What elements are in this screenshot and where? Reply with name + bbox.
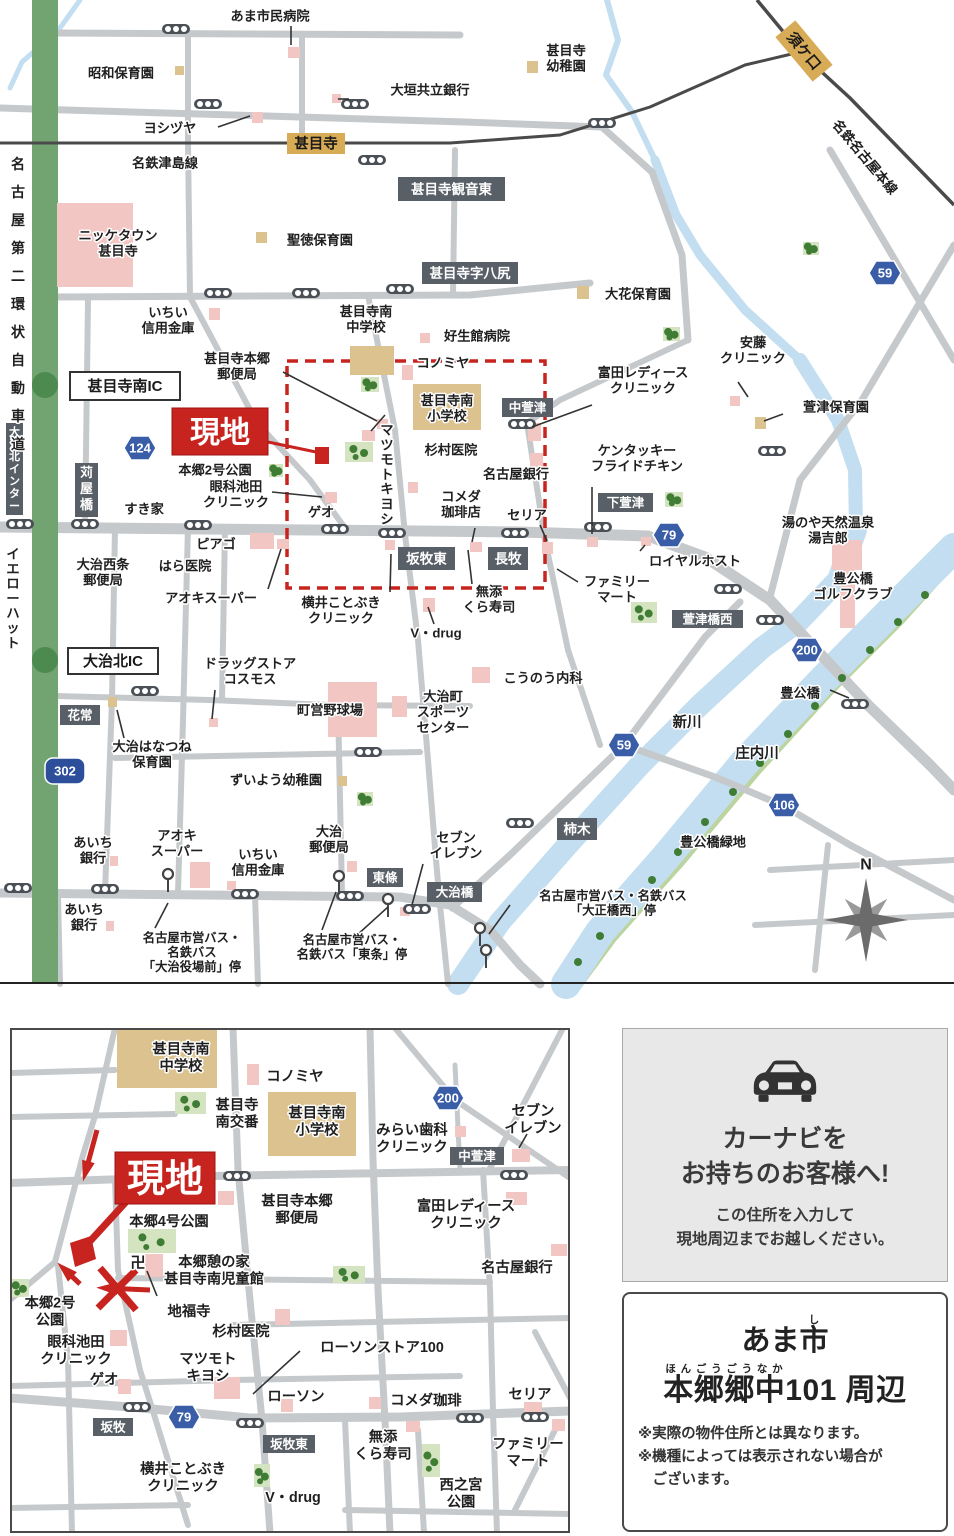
traffic-signal-icon <box>247 1420 253 1426</box>
traffic-signal-icon <box>311 290 317 296</box>
traffic-signal-icon <box>223 290 229 296</box>
tree-icon <box>365 385 371 391</box>
address-city: あま市し <box>624 1314 946 1359</box>
route-badge-number: 106 <box>773 798 795 813</box>
building <box>402 365 413 380</box>
map-label: 横井ことぶきクリニック <box>301 594 380 626</box>
map-label: ドラッグストアコスモス <box>204 655 296 687</box>
map-label: コメダ珈琲店 <box>441 488 481 520</box>
tree-icon <box>669 500 675 506</box>
carnav-title-line1: カーナビを <box>623 1122 947 1157</box>
tree-icon <box>645 610 653 618</box>
address-ruby: 市し <box>800 1325 829 1357</box>
tree-icon <box>596 932 604 940</box>
traffic-signal-icon <box>365 749 371 755</box>
traffic-signal-icon <box>525 820 531 826</box>
map-label: ロイヤルホスト <box>649 554 741 569</box>
traffic-signal-icon <box>769 448 775 454</box>
map-label: 好生館病院 <box>443 328 511 344</box>
road <box>10 1070 115 1073</box>
traffic-signal-icon <box>517 820 523 826</box>
traffic-signal-icon <box>767 617 773 623</box>
map-label: ゲオ <box>308 504 334 520</box>
map-label: 大花保育園 <box>605 286 671 302</box>
building <box>325 492 337 503</box>
traffic-signal-icon <box>406 906 412 912</box>
traffic-signal-icon <box>357 749 363 755</box>
school-building <box>256 232 267 243</box>
traffic-signal-icon <box>295 290 301 296</box>
traffic-signal-icon <box>7 885 13 891</box>
traffic-signal-icon <box>239 1420 245 1426</box>
tree-icon <box>574 958 582 966</box>
road <box>345 1510 570 1514</box>
ic-badge-label: 大治北IC <box>83 652 143 670</box>
carnav-title-line2: お持ちのお客様へ! <box>623 1157 947 1192</box>
map-label: 甚目寺南交番 <box>216 1096 260 1131</box>
tree-icon <box>635 605 643 613</box>
map-label: 地福寺 <box>168 1302 211 1320</box>
tree-icon <box>19 1285 27 1293</box>
building <box>190 862 210 888</box>
traffic-signal-icon <box>603 524 609 530</box>
road <box>10 1505 188 1508</box>
compass-icon <box>824 878 908 962</box>
traffic-signal-icon <box>777 448 783 454</box>
map-label: 甚目寺本郷郵便局 <box>204 350 271 382</box>
place-badge-label: 中萱津 <box>458 1149 496 1164</box>
map-label: 名鉄津島線 <box>132 155 199 171</box>
traffic-signal-icon <box>595 524 601 530</box>
map-label: はら医院 <box>159 558 213 574</box>
interchange-icon <box>32 647 58 673</box>
school-building <box>577 286 589 299</box>
station-badge: 甚目寺 <box>287 133 345 154</box>
tree-icon <box>666 335 672 341</box>
traffic-signal-icon <box>389 286 395 292</box>
traffic-signal-icon <box>405 286 411 292</box>
map-label: 新川 <box>673 713 702 731</box>
traffic-signal-icon <box>504 530 510 536</box>
map-label: ヨシヅヤ <box>144 121 197 136</box>
bus-stop-icon <box>334 871 344 881</box>
traffic-signal-icon <box>503 1172 509 1178</box>
map-label: あま市民病院 <box>230 8 310 24</box>
map-label: 横井ことぶきクリニック <box>140 1460 226 1495</box>
traffic-signal-icon <box>142 688 148 694</box>
building <box>288 47 300 58</box>
park <box>333 1266 365 1283</box>
traffic-signal-icon <box>511 421 517 427</box>
building <box>552 1419 565 1431</box>
place-badge-label: 甚目寺観音東 <box>411 181 492 197</box>
tree-icon <box>894 618 902 626</box>
traffic-signal-icon <box>344 101 350 107</box>
tree-icon <box>638 615 644 621</box>
carnav-sub-line2: 現地周辺までお越しください。 <box>623 1228 947 1252</box>
traffic-signal-icon <box>173 26 179 32</box>
map-label: セリア <box>507 508 547 523</box>
bus-stop-icon <box>475 923 485 933</box>
building <box>392 696 407 717</box>
tree-icon <box>14 1290 20 1296</box>
tree-icon <box>362 378 370 386</box>
traffic-signal-icon <box>532 1414 538 1420</box>
traffic-signal-icon <box>459 1415 465 1421</box>
map-label: 大垣共立銀行 <box>390 82 469 98</box>
building <box>275 1309 290 1325</box>
traffic-signal-icon <box>511 1172 517 1178</box>
traffic-signal-icon <box>255 1420 261 1426</box>
access-map-flyer: 現地甚目寺須ケ口甚目寺南IC大治北IC甚目寺観音東甚目寺字八尻中萱津下萱津長牧坂… <box>0 0 954 1536</box>
traffic-signal-icon <box>512 530 518 536</box>
traffic-signal-icon <box>203 522 209 528</box>
traffic-signal-icon <box>475 1415 481 1421</box>
building <box>110 856 118 866</box>
traffic-signal-icon <box>242 891 248 897</box>
building <box>420 333 430 343</box>
map-label: こうのう内科 <box>503 670 583 686</box>
route-badge-number: 59 <box>878 266 892 281</box>
tree-icon <box>866 646 874 654</box>
tree-icon <box>701 818 709 826</box>
traffic-signal-icon <box>599 120 605 126</box>
traffic-signal-icon <box>23 885 29 891</box>
traffic-signal-icon <box>775 617 781 623</box>
map-label: 名古屋銀行 <box>481 1258 552 1276</box>
leader-line <box>738 382 748 397</box>
traffic-signal-icon <box>467 1415 473 1421</box>
address-main: 本郷ほんごう郷ごう中なか101 周辺 <box>624 1363 946 1409</box>
map-label: イエローハット <box>6 547 19 651</box>
tree-icon <box>349 445 357 453</box>
site-leader <box>268 442 316 452</box>
building <box>730 396 740 406</box>
map-label: 甚目寺南中学校 <box>152 1040 209 1075</box>
traffic-signal-icon <box>197 101 203 107</box>
building <box>362 430 375 441</box>
traffic-signal-icon <box>17 521 23 527</box>
tree-icon <box>192 1100 200 1108</box>
map-label: コノミヤ <box>266 1069 323 1085</box>
traffic-signal-icon <box>205 101 211 107</box>
traffic-signal-icon <box>250 891 256 897</box>
map-label: 杉村医院 <box>425 442 479 458</box>
traffic-signal-icon <box>195 522 201 528</box>
park <box>175 1092 206 1114</box>
building <box>542 542 553 554</box>
tree-icon <box>12 1281 20 1289</box>
traffic-signal-icon <box>361 157 367 163</box>
map-label: 名古屋市営バス・名鉄バス「東条」停 <box>297 932 408 962</box>
map-label: ファミリーマート <box>584 574 650 605</box>
leader-line <box>356 907 388 936</box>
traffic-signal-icon <box>234 1173 240 1179</box>
traffic-signal-icon <box>360 101 366 107</box>
road <box>255 895 258 984</box>
tree-icon <box>729 788 737 796</box>
tree-icon <box>666 493 674 501</box>
building <box>227 881 236 890</box>
map-label: V・drug <box>410 626 461 641</box>
site-label: 現地 <box>190 416 250 449</box>
traffic-signal-icon <box>761 448 767 454</box>
map-label: 名鉄名古屋本線 <box>829 116 901 198</box>
ic-badge-label: 甚目寺南IC <box>87 377 162 395</box>
traffic-signal-icon <box>332 526 338 532</box>
tree-icon <box>339 1268 347 1276</box>
address-notes: ※実際の物件住所とは異なります。※機種によっては表示されない場合が ございます。 <box>624 1423 946 1493</box>
traffic-signal-icon <box>381 530 387 536</box>
map-label: みらい歯科クリニック <box>376 1121 448 1156</box>
map-label: 卍 <box>130 1254 145 1271</box>
building <box>385 540 395 550</box>
traffic-signal-icon <box>82 521 88 527</box>
map-label: ゲオ <box>90 1370 119 1388</box>
place-badge-label: 甚目寺字八尻 <box>430 265 511 281</box>
map-label: 町営野球場 <box>297 702 363 718</box>
leader-line <box>764 414 783 421</box>
building <box>118 1379 131 1394</box>
place-badge-label: 東條 <box>372 870 398 885</box>
map-label: コノミヤ <box>417 356 470 371</box>
map-label: 豊公橋緑地 <box>680 834 746 850</box>
traffic-signal-icon <box>422 906 428 912</box>
traffic-signal-icon <box>389 530 395 536</box>
traffic-signal-icon <box>397 286 403 292</box>
map-label: N <box>860 857 872 874</box>
school-building <box>108 697 117 707</box>
road <box>452 602 740 908</box>
traffic-signal-icon <box>844 701 850 707</box>
building <box>209 308 220 320</box>
leader-line <box>272 492 322 497</box>
tree-icon <box>784 730 792 738</box>
map-label: コメダ珈琲 <box>390 1391 461 1409</box>
tree-icon <box>838 674 846 682</box>
leader-line <box>557 569 578 582</box>
traffic-signal-icon <box>733 586 739 592</box>
map-label: 杉村医院 <box>212 1322 270 1340</box>
bus-stop-icon <box>383 894 393 904</box>
traffic-signal-icon <box>540 1414 546 1420</box>
carnav-panel: カーナビを お持ちのお客様へ! この住所を入力して 現地周辺までお越しください。 <box>622 1028 948 1282</box>
tree-icon <box>342 1276 348 1282</box>
map-label: 萱津保育園 <box>803 399 869 415</box>
road <box>10 1114 175 1117</box>
traffic-signal-icon <box>165 26 171 32</box>
traffic-signal-icon <box>340 526 346 532</box>
traffic-signal-icon <box>234 891 240 897</box>
traffic-signal-icon <box>102 886 108 892</box>
route-badge-number: 200 <box>437 1091 459 1106</box>
note-line: ※実際の物件住所とは異なります。 <box>638 1423 932 1446</box>
place-badge-label: 長牧 <box>495 550 523 566</box>
road <box>55 33 460 35</box>
traffic-signal-icon <box>352 101 358 107</box>
traffic-signal-icon <box>527 421 533 427</box>
road <box>58 895 60 984</box>
building <box>641 537 651 546</box>
building <box>408 482 418 493</box>
place-badge-label: 中萱津 <box>509 400 547 415</box>
tree-icon <box>921 591 929 599</box>
tree-icon <box>143 1244 149 1250</box>
tree-icon <box>138 1233 146 1241</box>
car-icon <box>746 1055 824 1105</box>
tree-icon <box>648 876 656 884</box>
tree-icon <box>351 1271 359 1279</box>
map-label: セリア <box>509 1386 552 1403</box>
map-label: 甚目寺南小学校 <box>288 1104 345 1139</box>
map-label: すき家 <box>124 501 164 517</box>
station-name: 甚目寺 <box>294 135 338 153</box>
tree-icon <box>811 702 819 710</box>
building <box>106 921 114 931</box>
map-label: 昭和保育園 <box>88 65 154 81</box>
detail-map-canvas: 現地中萱津坂牧坂牧東20079甚目寺南中学校コノミヤ甚目寺南交番甚目寺南小学校み… <box>10 1028 570 1533</box>
place-badge-label: 坂牧東 <box>270 1437 308 1452</box>
tree-icon <box>157 1238 165 1246</box>
address-ruby: 中なか <box>755 1374 786 1407</box>
building <box>455 1126 466 1137</box>
traffic-signal-icon <box>74 521 80 527</box>
map-label: 名古屋市営バス・名鉄バス「大治役場前」停 <box>143 930 241 974</box>
route-badge-number: 200 <box>796 643 818 658</box>
map-label: ローソン <box>267 1389 324 1405</box>
traffic-signal-icon <box>373 749 379 755</box>
building <box>369 1397 381 1409</box>
bus-stop-icon <box>481 945 491 955</box>
building <box>347 861 357 872</box>
map-label: いちい信用金庫 <box>232 847 285 878</box>
road <box>815 845 828 970</box>
building <box>277 539 289 549</box>
place-badge-label: 柿木 <box>564 821 592 837</box>
traffic-signal-icon <box>852 701 858 707</box>
map-label: V・drug <box>265 1490 321 1506</box>
building <box>250 533 274 549</box>
school-building <box>350 346 394 375</box>
traffic-signal-icon <box>397 530 403 536</box>
traffic-signal-icon <box>377 157 383 163</box>
map-label: あいち銀行 <box>64 902 104 933</box>
traffic-signal-icon <box>90 521 96 527</box>
building <box>218 1191 234 1205</box>
map-label: 豊公橋 <box>780 685 820 701</box>
map-label: マツモトキヨシ <box>179 1352 236 1385</box>
building <box>472 667 490 683</box>
map-label: 本郷4号公園 <box>129 1212 208 1230</box>
traffic-signal-icon <box>725 586 731 592</box>
school-building <box>527 61 538 73</box>
traffic-signal-icon <box>134 688 140 694</box>
route-badge-number: 124 <box>129 441 151 456</box>
leader-line <box>155 903 168 928</box>
address-ruby: 本郷ほんごう <box>663 1374 724 1407</box>
traffic-signal-icon <box>519 421 525 427</box>
building <box>470 542 482 552</box>
note-line: ※機種によっては表示されない場合が <box>638 1446 932 1469</box>
school-building <box>755 417 766 429</box>
tree-icon <box>423 1452 431 1460</box>
leader-line <box>117 710 124 738</box>
area-map: 現地甚目寺須ケ口甚目寺南IC大治北IC甚目寺観音東甚目寺字八尻中萱津下萱津長牧坂… <box>0 0 954 1013</box>
traffic-signal-icon <box>509 820 515 826</box>
place-badge-label: 坂牧 <box>100 1420 126 1435</box>
building <box>247 1064 259 1085</box>
map-label: 名古屋市営バス・名鉄バス「大正橋西」停 <box>539 888 687 918</box>
building <box>252 112 263 123</box>
map-label: 本郷2号公園 <box>178 462 251 478</box>
traffic-signal-icon <box>303 290 309 296</box>
school-building <box>175 66 184 75</box>
carnav-subtitle: この住所を入力して 現地周辺までお越しください。 <box>623 1204 947 1252</box>
leader-line <box>468 550 472 584</box>
traffic-signal-icon <box>347 893 353 899</box>
road <box>55 696 470 706</box>
map-label: 眼科池田クリニック <box>40 1333 111 1368</box>
traffic-signal-icon <box>414 906 420 912</box>
traffic-signal-icon <box>142 1404 148 1410</box>
map-label: 甚目寺幼稚園 <box>546 42 586 74</box>
traffic-signal-icon <box>355 893 361 899</box>
traffic-signal-icon <box>524 1414 530 1420</box>
area-map-canvas: 現地甚目寺須ケ口甚目寺南IC大治北IC甚目寺観音東甚目寺字八尻中萱津下萱津長牧坂… <box>0 0 954 1008</box>
map-label: マツモトキヨシ <box>380 423 393 527</box>
place-badge-label: 花常 <box>67 708 92 723</box>
place-badge-label: 大治橋 <box>436 885 474 900</box>
interchange-icon <box>32 372 58 398</box>
school-building <box>338 776 347 786</box>
map-label: 甚目寺南小学校 <box>421 392 474 424</box>
park <box>631 602 657 623</box>
map-label: ローソンストア100 <box>320 1340 444 1356</box>
traffic-signal-icon <box>150 688 156 694</box>
site-marker <box>315 447 329 464</box>
traffic-signal-icon <box>607 120 613 126</box>
leader-line <box>212 690 215 719</box>
route-badge-number: 79 <box>662 528 676 543</box>
address-panel: あま市し 本郷ほんごう郷ごう中なか101 周辺 ※実際の物件住所とは異なります。… <box>622 1292 948 1532</box>
traffic-signal-icon <box>215 290 221 296</box>
detail-map: 現地中萱津坂牧坂牧東20079甚目寺南中学校コノミヤ甚目寺南交番甚目寺南小学校み… <box>10 1028 570 1536</box>
leader-line <box>268 549 281 589</box>
tree-icon <box>360 449 368 457</box>
tree-icon <box>360 800 366 806</box>
tree-icon <box>353 454 359 460</box>
park <box>345 442 373 462</box>
map-label: セブンイレブン <box>430 829 483 861</box>
site-label: 現地 <box>127 1159 203 1201</box>
tree-icon <box>257 1478 263 1484</box>
building <box>512 1149 530 1162</box>
tree-icon <box>426 1466 432 1472</box>
expressway <box>32 0 58 984</box>
map-label: 庄内川 <box>735 744 779 762</box>
building <box>551 1244 567 1256</box>
route-shield-number: 302 <box>54 764 76 779</box>
carnav-sub-line1: この住所を入力して <box>623 1204 947 1228</box>
traffic-signal-icon <box>213 101 219 107</box>
carnav-title: カーナビを お持ちのお客様へ! <box>623 1122 947 1192</box>
traffic-signal-icon <box>25 521 31 527</box>
map-label: 大治西条郵便局 <box>77 556 131 588</box>
tree-icon <box>180 1096 188 1104</box>
map-label: セブンイレブン <box>504 1102 561 1137</box>
building <box>209 718 218 727</box>
map-label: アオキスーパー <box>165 591 257 606</box>
